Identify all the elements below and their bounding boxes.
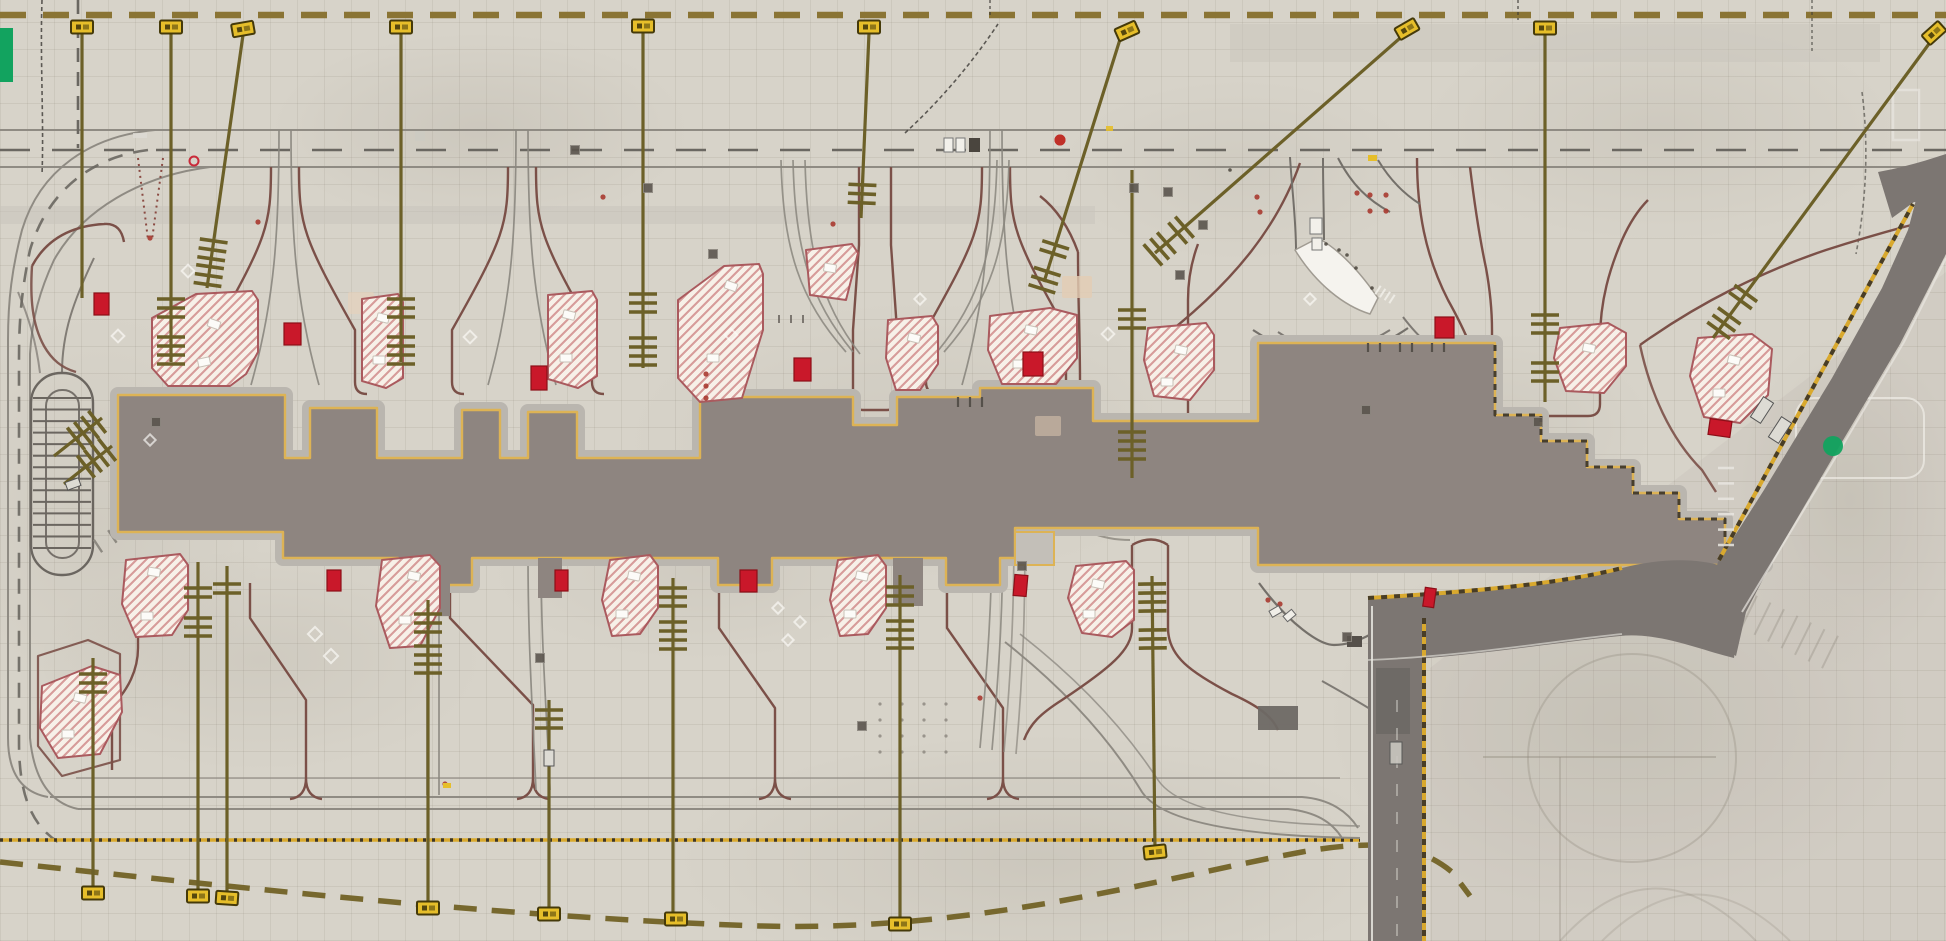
grass-patch (0, 28, 13, 82)
vehicle (1283, 609, 1296, 621)
staged-item (1083, 610, 1095, 618)
red-marker-box (531, 366, 547, 390)
red-dot-marker (1354, 190, 1359, 195)
mast-id-sign (1394, 18, 1420, 40)
utility-box (152, 418, 161, 427)
mast-id-sign-plate (187, 890, 209, 903)
mast-id-sign-plate (82, 887, 104, 900)
mast-id-sign (538, 908, 560, 921)
mast-id-sign-plate (1143, 844, 1166, 859)
mast-id-sign-plate (390, 21, 412, 34)
crossing-sign (944, 138, 953, 152)
light-mast-crossbar (848, 202, 876, 203)
sign-glyph (402, 25, 408, 30)
sign-glyph (422, 906, 427, 911)
painted-diamond-mark (464, 331, 477, 344)
mast-id-sign (187, 890, 209, 903)
red-marker-box (1708, 419, 1732, 438)
staged-item (141, 612, 153, 620)
staging-area-border (122, 554, 188, 637)
utility-box (1130, 184, 1139, 193)
mast-id-sign (889, 918, 911, 931)
staging-area-border (548, 291, 597, 388)
sign-glyph (894, 922, 899, 927)
mast-id-sign-plate (1394, 18, 1420, 40)
staged-item (616, 610, 628, 618)
sign-glyph (901, 922, 907, 927)
sign-glyph (870, 25, 876, 30)
mast-id-sign (417, 902, 439, 915)
sign-glyph (172, 25, 178, 30)
light-mast-crossbar (848, 184, 876, 185)
red-dot-marker (703, 395, 708, 400)
red-dot-marker (1367, 192, 1372, 197)
staging-area-border (1144, 323, 1214, 400)
mast-id-sign (665, 913, 687, 926)
red-marker-box (94, 293, 109, 315)
mast-id-sign-plate (417, 902, 439, 915)
sign-glyph (94, 891, 100, 896)
staged-item (197, 357, 210, 367)
light-mast-crossbar (1029, 285, 1056, 293)
staging-area-border (602, 555, 658, 636)
mast-id-sign (216, 891, 239, 906)
mast-id-sign (71, 21, 93, 34)
bus-stop-marker (1312, 238, 1322, 250)
sign-glyph (644, 24, 650, 29)
small-dot-marker (1337, 248, 1341, 252)
small-dot-marker (1354, 266, 1358, 270)
mast-id-sign-plate (889, 918, 911, 931)
red-marker-box (794, 358, 811, 381)
staging-area-border (1554, 323, 1626, 393)
bus-stop-marker (1310, 218, 1322, 234)
sign-glyph (244, 25, 251, 31)
staging-area-border (830, 555, 886, 636)
light-mast-crossbar (195, 274, 223, 278)
sign-glyph (637, 24, 642, 29)
map-detail-layer (0, 0, 1946, 941)
red-dot-marker (1257, 209, 1262, 214)
staged-item (62, 730, 74, 738)
red-dot-marker (977, 695, 982, 700)
red-marker-box (284, 323, 301, 345)
painted-diamond-mark (725, 329, 738, 342)
mast-id-sign (1921, 21, 1946, 45)
staging-area-border (40, 666, 122, 758)
mast-id-sign-plate (538, 908, 560, 921)
sign-glyph (429, 906, 435, 911)
staged-item (1582, 343, 1595, 353)
mast-id-sign-plate (71, 21, 93, 34)
light-mast-pole (1152, 576, 1155, 850)
staging-area-border (678, 264, 763, 402)
crossing-sign-dark (969, 138, 980, 152)
mast-id-sign-plate (665, 913, 687, 926)
staged-item (627, 571, 640, 581)
utility-box (644, 184, 653, 193)
painted-diamond-mark (794, 616, 805, 627)
staged-item (207, 318, 221, 330)
airport-apron-map (0, 0, 1946, 941)
painted-diamond-mark (772, 602, 783, 613)
sign-glyph (670, 917, 675, 922)
small-dot-marker (1345, 253, 1349, 257)
mast-id-sign (82, 887, 104, 900)
staged-item (407, 571, 420, 581)
red-dot-marker (830, 221, 835, 226)
red-marker-box (555, 570, 568, 591)
utility-box (1343, 633, 1352, 642)
mast-id-sign-plate (231, 21, 255, 38)
red-dot-marker (1367, 208, 1372, 213)
mast-id-sign-plate (1114, 21, 1139, 42)
light-mast-pole (64, 446, 112, 484)
small-dot-marker (1228, 168, 1232, 172)
staged-item (1024, 325, 1037, 335)
staged-item (147, 567, 160, 577)
painted-diamond-mark (1304, 293, 1315, 304)
light-mast-crossbar (196, 265, 224, 269)
painted-diamond-mark (182, 265, 195, 278)
red-dot-marker (1383, 192, 1388, 197)
mast-id-sign-plate (858, 21, 880, 34)
staged-item (855, 571, 868, 581)
sign-glyph (1539, 26, 1544, 31)
vehicle (1390, 742, 1402, 764)
red-dot-marker (1265, 597, 1270, 602)
sign-glyph (76, 25, 81, 30)
staged-item (1713, 389, 1725, 397)
mast-id-sign (160, 21, 182, 34)
staged-item (907, 333, 921, 344)
yellow-tick (443, 783, 451, 788)
light-mast-crossbar (848, 193, 876, 194)
staged-item (1091, 579, 1104, 589)
mast-id-sign (1143, 844, 1166, 859)
sign-glyph (550, 912, 556, 917)
vehicle (1768, 417, 1791, 444)
mast-id-sign (632, 20, 654, 33)
sign-glyph (1546, 26, 1552, 31)
staging-area-border (376, 555, 440, 648)
utility-box (858, 722, 867, 731)
staged-item (560, 354, 572, 362)
light-mast-crossbar (200, 239, 228, 243)
red-dot-marker (600, 194, 605, 199)
painted-diamond-mark (144, 434, 155, 445)
staged-item (1174, 345, 1187, 355)
utility-box (1362, 406, 1371, 415)
utility-box (1199, 221, 1208, 230)
yellow-tick (1368, 155, 1377, 161)
utility-box (1534, 418, 1543, 427)
sign-glyph (228, 896, 234, 901)
mast-id-sign-plate (160, 21, 182, 34)
sign-glyph (83, 25, 89, 30)
yellow-tick (1106, 126, 1113, 131)
vehicle (1269, 606, 1282, 618)
painted-diamond-mark (112, 330, 125, 343)
red-marker-box (1013, 574, 1028, 596)
mast-id-sign-plate (1921, 21, 1946, 45)
mast-id-sign (1534, 22, 1556, 35)
sign-glyph (1156, 849, 1162, 855)
light-mast-pole (1155, 32, 1407, 253)
utility-box (536, 654, 545, 663)
staging-area-border (886, 316, 938, 390)
staged-item (1727, 355, 1741, 366)
painted-diamond-mark (782, 634, 793, 645)
red-dot-marker (703, 371, 708, 376)
sign-glyph (87, 891, 92, 896)
red-dot-marker (147, 235, 152, 240)
sign-glyph (1149, 850, 1154, 855)
hydrant-marker (1055, 135, 1066, 146)
staged-item (373, 356, 385, 364)
staged-item (724, 280, 738, 292)
staged-item (399, 616, 411, 624)
crossing-sign (956, 138, 965, 152)
sign-glyph (677, 917, 683, 922)
painted-diamond-mark (1102, 328, 1115, 341)
mast-id-sign-plate (632, 20, 654, 33)
red-marker-box (1423, 587, 1437, 607)
utility-box (1018, 562, 1027, 571)
mast-id-sign-plate (1534, 22, 1556, 35)
utility-box (709, 250, 718, 259)
stop-bar (133, 133, 147, 138)
staging-area-border (1068, 561, 1134, 637)
small-dot-marker (1370, 286, 1374, 290)
mast-id-sign (1114, 21, 1139, 42)
red-dot-marker (1254, 194, 1259, 199)
sign-glyph (221, 895, 226, 900)
sign-glyph (543, 912, 548, 917)
sign-glyph (192, 894, 197, 899)
sign-glyph (165, 25, 170, 30)
sign-glyph (237, 27, 243, 33)
light-mast-pole (861, 33, 869, 218)
painted-diamond-mark (914, 293, 925, 304)
painted-diamond-mark (324, 649, 338, 663)
red-marker-box (740, 570, 757, 592)
sign-glyph (199, 894, 205, 899)
sign-glyph (395, 25, 400, 30)
small-dot-marker (1324, 242, 1328, 246)
painted-diamond-mark (308, 627, 322, 641)
staged-item (73, 693, 87, 704)
ring-marker (190, 157, 199, 166)
sign-glyph (863, 25, 868, 30)
utility-box (571, 146, 580, 155)
light-mast-crossbar (197, 257, 225, 261)
staged-item (562, 310, 576, 321)
staged-item (1161, 378, 1173, 386)
vehicle (544, 750, 554, 766)
red-marker-box (327, 570, 341, 591)
mast-id-sign (231, 21, 255, 38)
mast-id-sign-plate (216, 891, 239, 906)
staged-item (707, 354, 719, 362)
red-dot-marker (1383, 208, 1388, 213)
tree-marker (1823, 436, 1843, 456)
staged-item (823, 263, 836, 273)
road-marker (415, 131, 425, 141)
mast-id-sign (858, 21, 880, 34)
light-mast-crossbar (194, 283, 222, 287)
red-marker-box (1023, 352, 1043, 376)
red-dot-marker (703, 383, 708, 388)
utility-box (1176, 271, 1185, 280)
light-mast-crossbar (199, 248, 227, 252)
red-marker-box (1435, 317, 1454, 338)
mast-id-sign (390, 21, 412, 34)
staged-item (844, 610, 856, 618)
utility-box (1164, 188, 1173, 197)
red-dot-marker (255, 219, 260, 224)
